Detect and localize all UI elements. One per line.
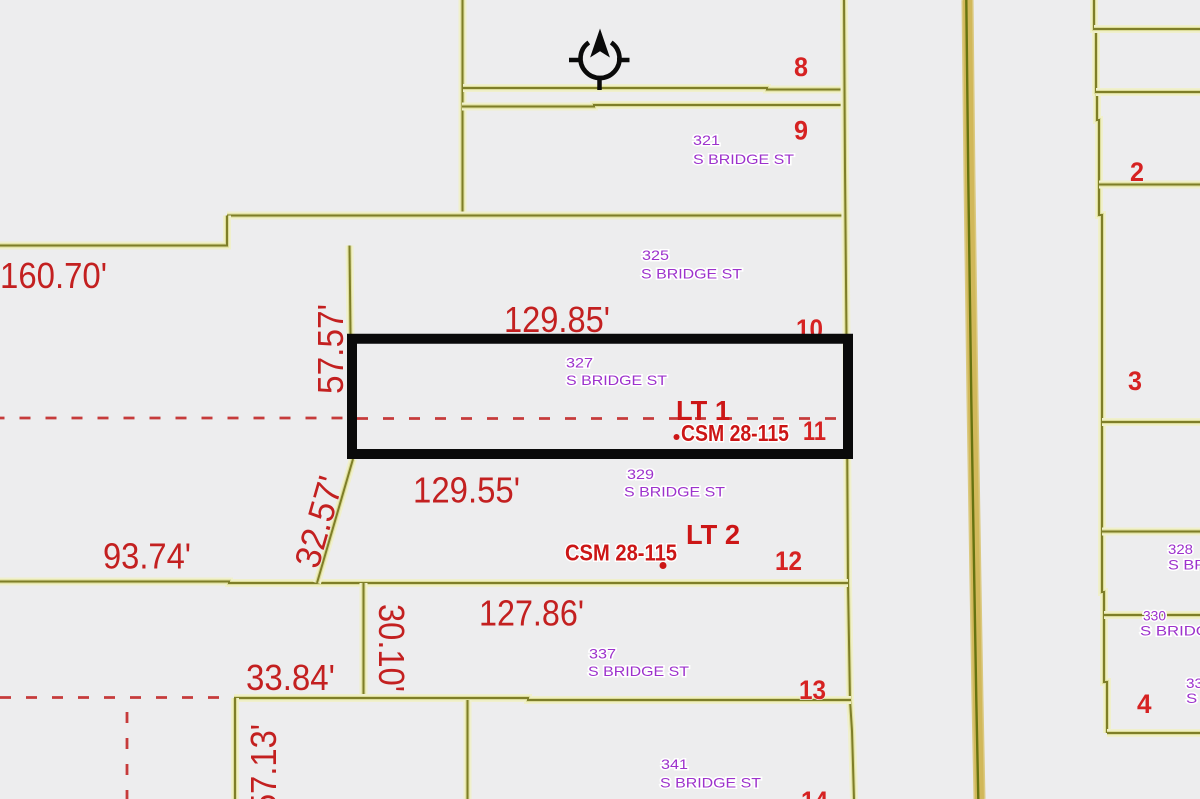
- svg-text:325: 325: [642, 247, 669, 263]
- svg-text:S BRIDGE ST: S BRIDGE ST: [693, 151, 795, 167]
- svg-text:328: 328: [1168, 541, 1193, 557]
- svg-text:57.57': 57.57': [310, 304, 351, 394]
- svg-text:CSM 28-115: CSM 28-115: [681, 420, 789, 446]
- svg-text:33.84': 33.84': [246, 657, 335, 698]
- svg-text:14: 14: [801, 786, 828, 799]
- svg-text:12: 12: [775, 546, 802, 576]
- svg-text:9: 9: [794, 116, 808, 146]
- svg-text:127.86': 127.86': [479, 593, 584, 634]
- svg-text:S BRIDGE ST: S BRIDGE ST: [660, 775, 762, 791]
- svg-text:129.55': 129.55': [413, 470, 520, 511]
- svg-text:321: 321: [693, 132, 720, 148]
- svg-text:CSM 28-115: CSM 28-115: [565, 540, 677, 566]
- svg-text:4: 4: [1137, 689, 1152, 719]
- svg-text:11: 11: [803, 416, 826, 446]
- svg-text:327: 327: [566, 355, 593, 371]
- svg-text:S BRIDGE ST: S BRIDGE ST: [566, 372, 668, 388]
- svg-text:160.70': 160.70': [0, 255, 107, 296]
- svg-text:S BRIDGE ST: S BRIDGE ST: [641, 266, 743, 282]
- svg-text:93.74': 93.74': [103, 536, 191, 577]
- svg-text:33: 33: [1186, 675, 1200, 691]
- svg-text:S BRIDGE ST: S BRIDGE ST: [588, 663, 690, 679]
- svg-text:3: 3: [1128, 366, 1142, 396]
- svg-text:S BRIDGE ST: S BRIDGE ST: [624, 484, 726, 500]
- svg-text:8: 8: [794, 52, 808, 82]
- svg-text:S BR: S BR: [1168, 557, 1200, 573]
- svg-text:337: 337: [589, 646, 616, 662]
- svg-text:57.13': 57.13': [243, 724, 284, 799]
- svg-text:13: 13: [799, 675, 826, 705]
- svg-text:LT 2: LT 2: [686, 519, 740, 550]
- svg-text:S BRIDGE: S BRIDGE: [1140, 623, 1200, 639]
- svg-text:30.10': 30.10': [371, 604, 412, 692]
- svg-text:330: 330: [1143, 608, 1166, 624]
- svg-text:2: 2: [1130, 157, 1144, 187]
- svg-text:S BRIDGE: S BRIDGE: [1186, 690, 1200, 706]
- svg-text:341: 341: [661, 756, 688, 772]
- svg-text:329: 329: [627, 466, 654, 482]
